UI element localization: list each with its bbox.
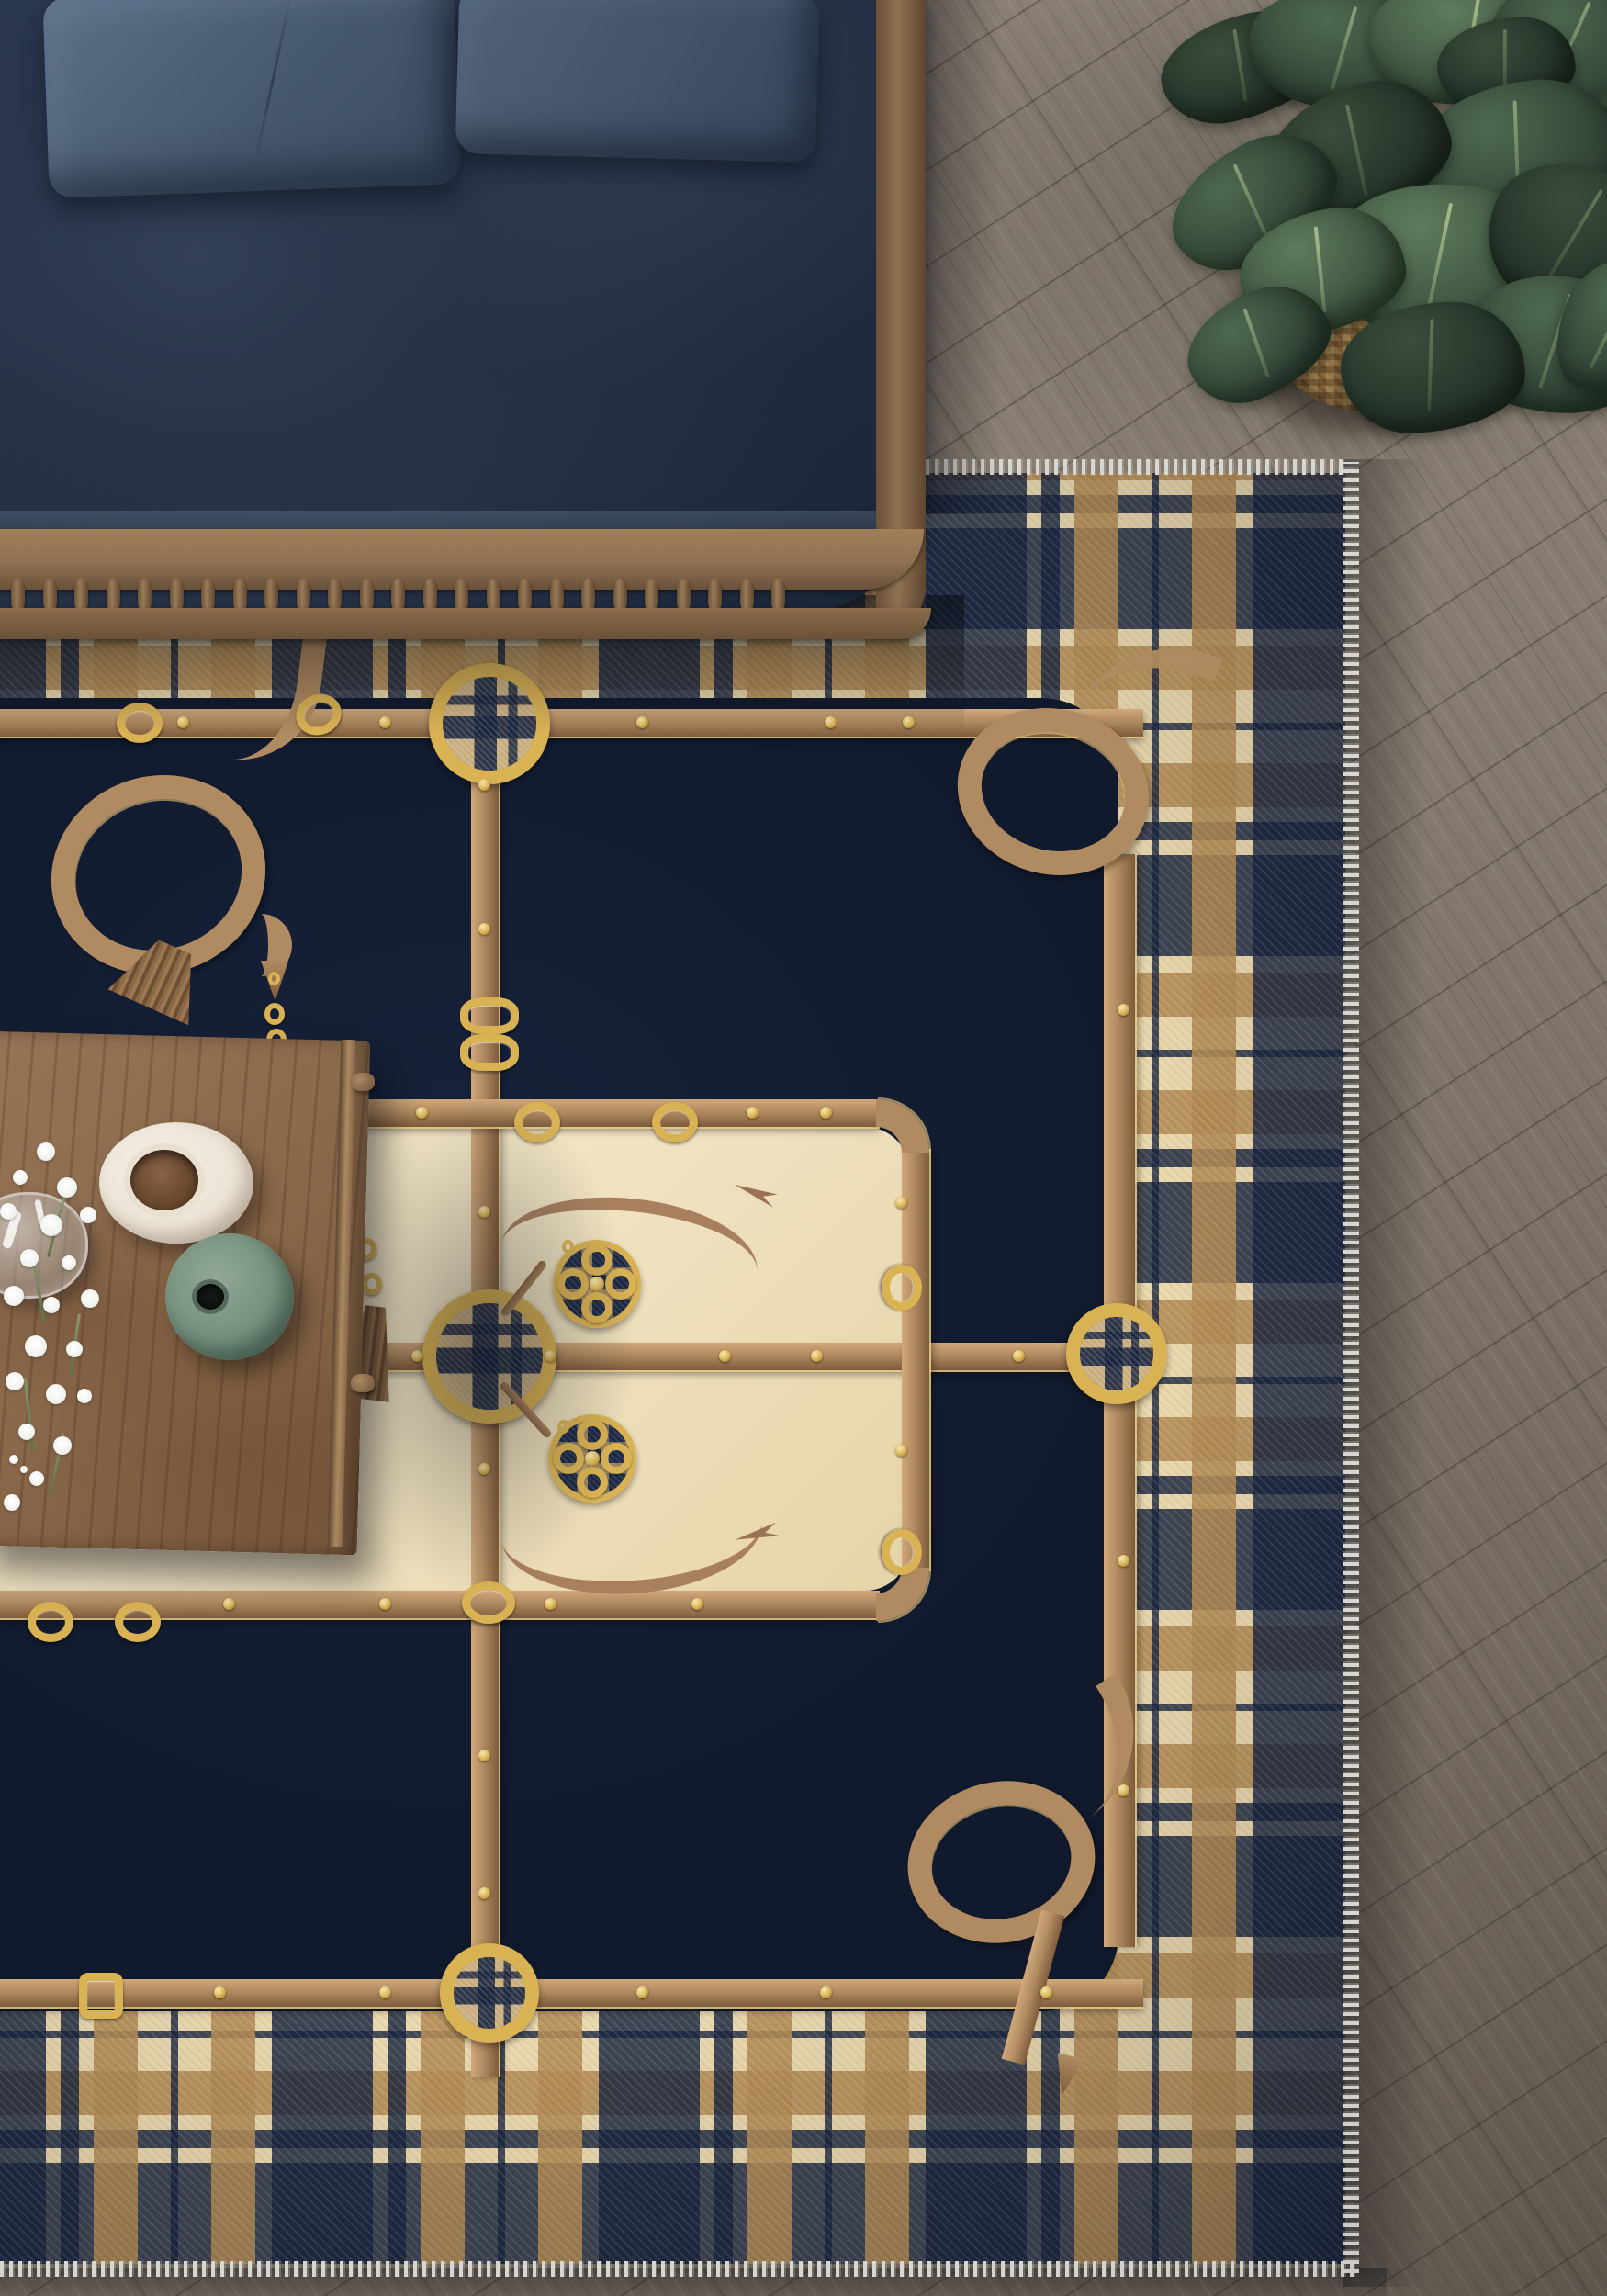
medallion-petal <box>557 1268 589 1300</box>
medallion-eyelet <box>562 1240 574 1254</box>
belt-rivet <box>67 1107 79 1119</box>
belt-rivet <box>379 1598 391 1610</box>
belt-rivet <box>1118 1784 1129 1796</box>
gold-ring-right <box>1066 1303 1167 1404</box>
looping-belt-tail <box>227 591 332 770</box>
belt-strap-top <box>0 709 1143 737</box>
belt-pointed-tip <box>1048 2053 1084 2099</box>
belt-rivet <box>379 1986 391 1998</box>
belt-rivet <box>416 1107 428 1119</box>
belt-d-ring <box>882 1265 922 1311</box>
gold-chain-link <box>356 1238 376 1260</box>
belt-rivet <box>478 1887 490 1899</box>
medallion-center-dot <box>585 1451 600 1466</box>
belt-rivet <box>895 1445 907 1457</box>
panel-frame-corner-bottom <box>876 1568 929 1621</box>
belt-rivet <box>411 1350 423 1362</box>
belt-d-ring <box>514 1102 560 1142</box>
belt-rivet <box>1118 1004 1129 1016</box>
belt-rivet <box>269 1107 281 1119</box>
gold-ring-top <box>429 663 550 784</box>
medallion-petal <box>581 1244 612 1276</box>
belt-d-ring <box>28 1602 73 1642</box>
bedroom-scene <box>0 0 1607 2296</box>
belt-rivet <box>223 1598 235 1610</box>
belt-rivet <box>379 716 391 728</box>
belt-rivet <box>545 1598 556 1610</box>
belt-d-ring <box>652 1102 698 1142</box>
belt-rivet <box>1013 1350 1025 1362</box>
belt-rivet <box>691 1598 703 1610</box>
belt-rivet <box>719 1350 731 1362</box>
belt-rivet <box>636 716 648 728</box>
gold-oval-buckle <box>462 1581 515 1624</box>
gold-ring-center <box>422 1289 556 1424</box>
medallion-petal <box>605 1268 636 1300</box>
belt-rivet <box>177 716 189 728</box>
belt-rivet <box>545 1350 556 1362</box>
gold-chain-link <box>362 1273 382 1295</box>
gold-double-loop-buckle <box>460 1034 519 1071</box>
belt-rivet <box>1118 1555 1129 1567</box>
gold-double-loop-buckle <box>460 997 519 1034</box>
plaid-ring-fill <box>443 677 536 771</box>
gold-chain-link <box>266 1029 287 1051</box>
plaid-ring-fill <box>454 1957 525 2029</box>
belt-rivet <box>903 716 915 728</box>
belt-rivet <box>478 779 490 791</box>
panel-frame-belt-right <box>902 1149 929 1571</box>
belt-strap-bottom <box>0 1979 1143 2007</box>
medallion-center-dot <box>590 1277 604 1291</box>
belt-rivet <box>825 716 837 728</box>
belt-eyelet <box>268 972 280 985</box>
belt-d-ring <box>117 703 163 743</box>
medallion-petal <box>577 1419 608 1450</box>
belt-rivet <box>478 1750 490 1761</box>
panel-frame-corner-top <box>876 1099 929 1153</box>
belt-rivet <box>636 1986 648 1998</box>
belt-d-ring <box>115 1602 161 1642</box>
plaid-ring-fill <box>1080 1317 1153 1390</box>
gold-chain-link <box>264 1003 285 1025</box>
medallion-petal <box>553 1443 584 1474</box>
medallion-petal <box>581 1292 612 1323</box>
belt-rivet <box>820 1107 832 1119</box>
belt-rivet <box>820 1986 832 1998</box>
medallion-eyelet <box>557 1420 569 1434</box>
gold-ring-bottom <box>440 1943 539 2043</box>
belt-rivet <box>811 1350 823 1362</box>
belt-rivet <box>747 1107 759 1119</box>
belt-rivet <box>214 1986 226 1998</box>
belt-rivet <box>478 1206 490 1218</box>
belt-d-ring <box>882 1529 922 1575</box>
gold-square-buckle <box>79 1973 123 2019</box>
rug-belt-decorations <box>0 0 1607 2296</box>
plaid-ring-fill <box>436 1303 543 1410</box>
medallion-petal <box>577 1467 608 1498</box>
belt-rivet <box>478 1463 490 1475</box>
belt-rivet <box>1040 1986 1052 1998</box>
medallion-petal <box>601 1443 632 1474</box>
belt-rivet <box>478 923 490 935</box>
belt-rivet <box>895 1197 907 1209</box>
